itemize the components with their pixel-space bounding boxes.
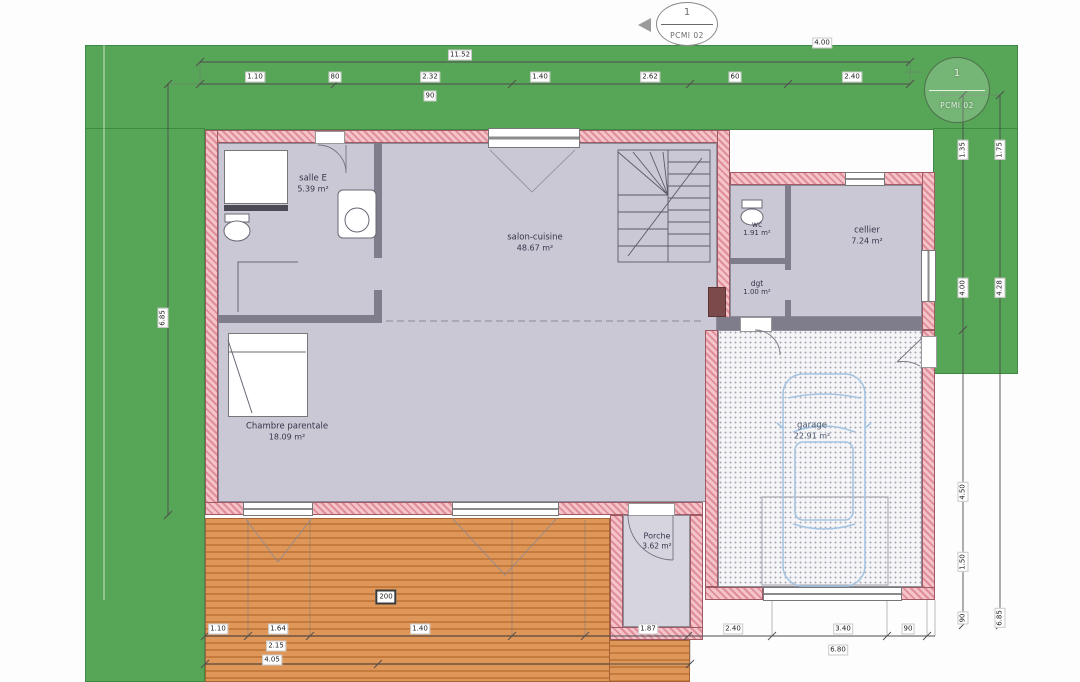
dim-label: 1.75: [995, 140, 1006, 160]
room-name: salon-cuisine: [507, 233, 562, 244]
dim-label: 1.40: [410, 624, 430, 635]
room-label-wc: wc 1.91 m²: [743, 220, 770, 238]
room-name: salle E: [297, 174, 328, 185]
dim-label: 4.50: [958, 482, 969, 502]
window-swings: [245, 150, 575, 575]
dim-label: 1.35: [958, 140, 969, 160]
dim-label: 2.15: [266, 641, 286, 652]
dim-label: 90: [958, 612, 969, 625]
dim-label: 1.10: [245, 72, 265, 83]
leader-arrow-icon: [638, 18, 651, 32]
dim-label: 2.32: [420, 72, 440, 83]
room-label-porche: Porche 3.62 m²: [642, 531, 671, 550]
dim-label: 1.40: [530, 72, 550, 83]
marker-code: PCMI 02: [925, 101, 989, 110]
room-area: 3.62 m²: [642, 541, 671, 550]
dim-label: 4.00: [958, 278, 969, 298]
marker-divider: [661, 24, 714, 25]
marker-code: PCMI 02: [657, 31, 717, 40]
staircase: [618, 150, 710, 262]
sanitary-fixtures: [224, 190, 763, 413]
room-name: Chambre parentale: [246, 422, 328, 433]
marker-number: 1: [657, 7, 717, 18]
room-area: 1.00 m²: [743, 288, 770, 297]
dim-label: 4.00: [812, 38, 832, 49]
car: [777, 374, 871, 586]
dim-label: 60: [729, 72, 742, 83]
dim-label: 1.10: [208, 624, 228, 635]
dim-label: 90: [424, 91, 437, 102]
dim-label: 2.40: [723, 624, 743, 635]
dim-label: 6.80: [828, 645, 848, 656]
garage-apron: [762, 497, 888, 585]
dim-label: 6.85: [995, 608, 1006, 628]
room-area: 22.91 m²: [794, 431, 830, 441]
room-label-dgt: dgt 1.00 m²: [743, 279, 770, 297]
dim-label: 1.50: [958, 552, 969, 572]
room-area: 5.39 m²: [297, 184, 328, 194]
dim-label: 11.52: [448, 50, 472, 61]
dim-label: 4.28: [995, 278, 1006, 298]
room-area: 48.67 m²: [507, 243, 562, 253]
room-name: garage: [794, 421, 830, 432]
door-swings: [318, 145, 922, 560]
sheet-marker-top: 1 PCMI 02: [656, 2, 718, 46]
room-name: wc: [743, 220, 770, 229]
room-name: Porche: [642, 531, 671, 541]
dim-label: 2.62: [640, 72, 660, 83]
dim-label: 1.64: [268, 624, 288, 635]
room-area: 18.09 m²: [246, 432, 328, 442]
dim-label: 80: [329, 72, 342, 83]
room-label-cellier: cellier 7.24 m²: [851, 226, 882, 247]
marker-divider: [929, 90, 985, 91]
marker-number: 1: [925, 68, 989, 79]
terrace-step-label: 200: [375, 590, 396, 605]
dim-label: 1.87: [638, 624, 658, 635]
dim-label: 6.85: [158, 308, 169, 328]
extension-lines: [168, 62, 1000, 664]
dim-label: 90: [902, 624, 915, 635]
room-label-garage: garage 22.91 m²: [794, 421, 830, 442]
dimension-lines: [164, 58, 1004, 668]
sheet-marker-right: 1 PCMI 02: [924, 57, 990, 123]
room-label-salon: salon-cuisine 48.67 m²: [507, 233, 562, 254]
floor-plan-canvas: salle E 5.39 m² salon-cuisine 48.67 m² w…: [0, 0, 1080, 682]
plan-linework: [0, 0, 1080, 682]
room-area: 1.91 m²: [743, 229, 770, 238]
room-name: cellier: [851, 226, 882, 237]
dim-label: 2.40: [842, 72, 862, 83]
room-area: 7.24 m²: [851, 236, 882, 246]
dim-label: 3.40: [833, 624, 853, 635]
dim-label: 4.05: [262, 655, 282, 666]
room-label-chambre: Chambre parentale 18.09 m²: [246, 422, 328, 443]
room-name: dgt: [743, 279, 770, 288]
room-label-salle-e: salle E 5.39 m²: [297, 174, 328, 195]
